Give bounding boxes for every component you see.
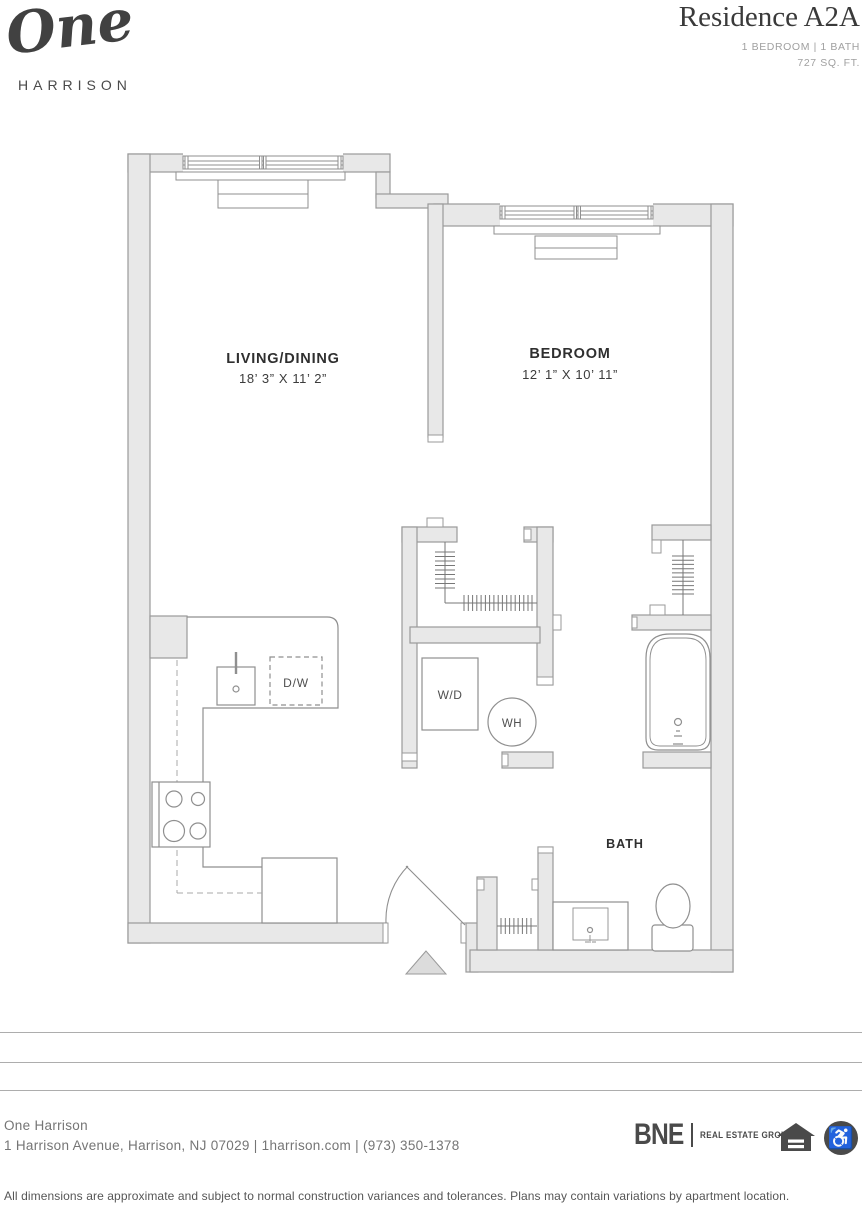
bath-vanity-sink [553,902,628,950]
bath-label: BATH [606,837,644,851]
footer-rule-1 [0,1032,862,1033]
property-address: 1 Harrison Avenue, Harrison, NJ 07029 | … [4,1138,460,1153]
dishwasher-label: D/W [283,676,309,690]
entry-marker-triangle [406,951,446,974]
bne-logo-divider [691,1123,693,1147]
bne-logo-text: BNE [634,1120,683,1150]
bedroom-window [494,206,660,259]
entry-door [386,866,465,925]
footer-contact: One Harrison 1 Harrison Avenue, Harrison… [4,1118,460,1153]
bedroom-label: BEDROOM [529,346,610,362]
accessibility-glyph: ♿ [828,1128,854,1149]
bedroom-dimensions: 12’ 1” X 10’ 11” [522,367,618,382]
wall-openings [183,152,653,945]
footer-rule-3 [0,1090,862,1091]
kitchen-counter [177,617,338,923]
floor-plan: LIVING/DINING 18’ 3” X 11’ 2” BEDROOM 12… [0,0,862,1205]
living-dining-dimensions: 18’ 3” X 11’ 2” [239,371,327,386]
toilet [652,884,693,951]
entry-closet-rod [497,918,537,934]
walkin-closet-rods [435,542,537,611]
disclaimer-text: All dimensions are approximate and subje… [4,1189,860,1203]
footer-rule-2 [0,1062,862,1063]
washer-dryer-label: W/D [438,688,463,702]
range-stove [152,782,210,847]
living-dining-label: LIVING/DINING [226,351,340,367]
water-heater-label: WH [502,718,522,730]
kitchen-sink [217,652,255,705]
equal-housing-icon [776,1122,816,1154]
bedroom-closet-rod [672,540,694,615]
accessibility-icon: ♿ [824,1121,858,1155]
living-window [176,156,345,208]
property-name: One Harrison [4,1118,460,1133]
bathtub [646,634,710,750]
